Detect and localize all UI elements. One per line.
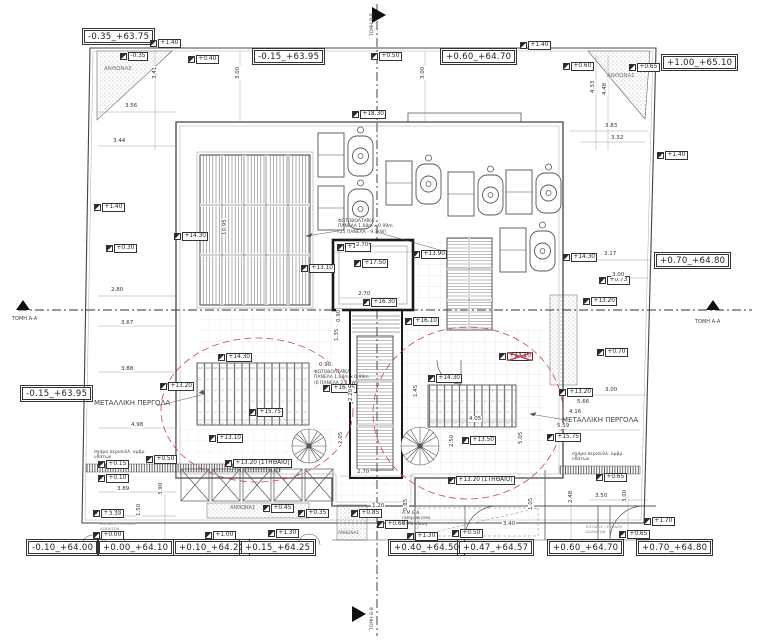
level-marker-icon bbox=[351, 510, 358, 517]
spot-elevation: +0.65 bbox=[596, 473, 627, 482]
dimension-label: 2.80 bbox=[110, 287, 124, 293]
roof-plan-drawing: -0.35_+63.75-0.15_+63.95+0.60_+64.70+1.0… bbox=[0, 0, 768, 640]
annotation-text: ΦΩΤΟΒΟΛΤΑΪΚΑ ΠΑΝΕΛΑ 1.68m x 0.99m (25 ΠΑ… bbox=[338, 219, 393, 235]
spot-elevation: +1.40 bbox=[94, 203, 125, 212]
dimension-label: 3.90 bbox=[158, 482, 164, 496]
spot-elevation: +0.65 bbox=[619, 530, 650, 539]
elevation-level-box: +0.70_+64.80 bbox=[656, 254, 729, 267]
dimension-label: 0.85 bbox=[403, 498, 409, 512]
level-marker-icon bbox=[150, 40, 157, 47]
level-marker-icon bbox=[93, 532, 100, 539]
spot-elevation: +0.30 bbox=[106, 244, 137, 253]
spot-elevation: +0.40 bbox=[188, 55, 219, 64]
level-marker-icon bbox=[93, 510, 100, 517]
spot-elevation: +1.00 bbox=[205, 531, 236, 540]
spot-elevation-value: +13.20 (ΣΤΗΘΑΙΟ) bbox=[456, 476, 515, 485]
spot-elevation: +0.15 bbox=[98, 460, 129, 469]
spot-elevation-value: +0.35 bbox=[306, 509, 329, 518]
level-marker-icon bbox=[120, 53, 127, 60]
level-marker-icon bbox=[413, 251, 420, 258]
dimension-label: 3.56 bbox=[124, 103, 138, 109]
spot-elevation-value: +0.30 bbox=[114, 244, 137, 253]
elevation-level-box: -0.10_+64.00 bbox=[28, 541, 97, 554]
spot-elevation-value: +1.30 bbox=[276, 529, 299, 538]
annotation-text: ΑΝΘΩΝΑΣ bbox=[104, 66, 132, 73]
dimension-label: 3.41 bbox=[152, 66, 158, 80]
spot-elevation-value: +17.50 bbox=[362, 259, 388, 268]
level-marker-icon bbox=[363, 299, 370, 306]
spot-elevation-value: +0.15 bbox=[106, 460, 129, 469]
spot-elevation-value: +0.45 bbox=[271, 504, 294, 513]
spot-elevation-value: +13.20 bbox=[591, 297, 617, 306]
dimension-label: 3.00 bbox=[420, 66, 426, 80]
dimension-label: 3.00 bbox=[235, 66, 241, 80]
dimension-label: 0.90 bbox=[336, 309, 342, 323]
annotation-text: ΜΕΤΑΛΛΙΚΗ ΠΕΡΓΟΛΑ bbox=[562, 416, 638, 424]
spot-elevation-value: +14.30 bbox=[226, 353, 252, 362]
spot-elevation: +1.70 bbox=[644, 517, 675, 526]
spot-elevation-value: +0.65 bbox=[604, 473, 627, 482]
spot-elevation-value: +0.70 bbox=[605, 348, 628, 357]
spot-elevation: +13.20 bbox=[583, 297, 617, 306]
level-marker-icon bbox=[371, 53, 378, 60]
dimension-label: 10.95 bbox=[222, 218, 228, 236]
annotation-text: ΤΟΜΗ Α-Α bbox=[12, 316, 37, 322]
dimension-label: 2.70 bbox=[357, 291, 371, 297]
dimension-label: 5.05 bbox=[518, 431, 524, 445]
dimension-label: 3.89 bbox=[116, 486, 130, 492]
spot-elevation-value: +1.00 bbox=[213, 531, 236, 540]
annotation-text: ΑΝΘΩΝΑΣ bbox=[338, 530, 359, 535]
elevation-level-box: +0.15_+64.25 bbox=[241, 541, 314, 554]
level-marker-icon bbox=[629, 64, 636, 71]
spot-elevation-value: +14.30 bbox=[436, 374, 462, 383]
dimension-label: 4.33 bbox=[590, 80, 596, 94]
dimension-label: 3.40 bbox=[502, 521, 516, 527]
elevation-level-box: -0.15_+63.95 bbox=[254, 50, 323, 63]
spot-elevation-value: +1.40 bbox=[158, 39, 181, 48]
spot-elevation-value: +14.30 bbox=[571, 253, 597, 262]
spot-elevation: +13.20 (ΣΤΗΘΑΙΟ) bbox=[448, 476, 515, 485]
dimension-label: 1.20 bbox=[371, 503, 385, 509]
dimension-label: 4.98 bbox=[130, 422, 144, 428]
dimension-label: 3.17 bbox=[603, 251, 617, 257]
elevation-level-box: +0.47_+64.57 bbox=[459, 541, 532, 554]
annotation-text: σχάρα περισυλλ. ομβρ. υδάτων bbox=[572, 452, 624, 463]
level-marker-icon bbox=[263, 505, 270, 512]
spot-elevation-value: +13.20 bbox=[168, 382, 194, 391]
spot-elevation-value: +1.70 bbox=[652, 517, 675, 526]
dimension-label: 4.16 bbox=[568, 409, 582, 415]
dimension-label: 3.32 bbox=[610, 135, 624, 141]
spot-elevation-value: +1.30 bbox=[415, 532, 438, 541]
spot-elevation: +13.10 bbox=[301, 264, 335, 273]
spot-elevation-value: +1.40 bbox=[528, 41, 551, 50]
level-marker-icon bbox=[174, 233, 181, 240]
spot-elevation: +0.00 bbox=[93, 531, 124, 540]
spot-elevation: +0.45 bbox=[263, 504, 294, 513]
spot-elevation: +14.30 bbox=[428, 374, 462, 383]
spot-elevation-value: +0.50 bbox=[379, 52, 402, 61]
elevation-level-box: -0.35_+63.75 bbox=[84, 30, 153, 43]
level-marker-icon bbox=[377, 521, 384, 528]
spot-elevation: +18.30 bbox=[352, 110, 386, 119]
level-marker-icon bbox=[499, 353, 506, 360]
dimension-label: 1.45 bbox=[413, 384, 419, 398]
spot-elevation-value: -0.35 bbox=[128, 52, 148, 61]
level-marker-icon bbox=[563, 63, 570, 70]
spot-elevation-value: +14.30 bbox=[182, 232, 208, 241]
dimension-label: 5.66 bbox=[576, 399, 590, 405]
dimension-label: 2.70 bbox=[355, 242, 369, 248]
spot-elevation: +14.30 bbox=[563, 253, 597, 262]
level-marker-icon bbox=[352, 111, 359, 118]
elevation-level-box: -0.15_+63.95 bbox=[22, 387, 91, 400]
spot-elevation: +13.90 bbox=[413, 250, 447, 259]
level-marker-icon bbox=[644, 518, 651, 525]
dimension-label: 1.35 bbox=[334, 328, 340, 342]
spot-elevation-value: +1.40 bbox=[102, 203, 125, 212]
level-marker-icon bbox=[209, 435, 216, 442]
level-marker-icon bbox=[547, 434, 554, 441]
spot-elevation: +14.10 bbox=[499, 352, 533, 361]
annotation-text: ΤΟΜΗ Β-Β bbox=[370, 13, 375, 36]
spot-elevation: +16.10 bbox=[405, 317, 439, 326]
level-marker-icon bbox=[146, 456, 153, 463]
dimension-label: 0.90 bbox=[318, 362, 332, 368]
level-marker-icon bbox=[407, 533, 414, 540]
elevation-level-box: +0.60_+64.70 bbox=[442, 50, 515, 63]
level-marker-icon bbox=[218, 354, 225, 361]
level-marker-icon bbox=[160, 383, 167, 390]
level-marker-icon bbox=[563, 254, 570, 261]
spot-elevation-value: +13.20 (ΣΤΗΘΑΙΟ) bbox=[233, 459, 292, 468]
elevation-level-box: +0.60_+64.70 bbox=[549, 541, 622, 554]
level-marker-icon bbox=[597, 349, 604, 356]
level-marker-icon bbox=[520, 42, 527, 49]
spot-elevation: +16.30 bbox=[363, 298, 397, 307]
level-marker-icon bbox=[337, 244, 344, 251]
spot-elevation: +17.50 bbox=[354, 259, 388, 268]
elevation-level-box: +1.00_+65.10 bbox=[663, 56, 736, 69]
spot-elevation: +0.50 bbox=[146, 455, 177, 464]
spot-elevation: +13.20 bbox=[559, 388, 593, 397]
spot-elevation: +1.40 bbox=[150, 39, 181, 48]
dimension-label: 2.50 bbox=[449, 434, 455, 448]
spot-elevation: +13.20 (ΣΤΗΘΑΙΟ) bbox=[225, 459, 292, 468]
spot-elevation: +1.40 bbox=[657, 151, 688, 160]
dimension-label: 3.44 bbox=[112, 138, 126, 144]
spot-elevation-value: +1.40 bbox=[665, 151, 688, 160]
spot-elevation: +0.35 bbox=[298, 509, 329, 518]
dimension-label: 2.70 bbox=[356, 469, 370, 475]
spot-elevation-value: +0.40 bbox=[196, 55, 219, 64]
spot-elevation-value: +13.10 bbox=[217, 434, 243, 443]
spot-elevation: +15.75 bbox=[547, 433, 581, 442]
elevation-level-box: +0.00_+64.10 bbox=[99, 541, 172, 554]
spot-elevation: +13.20 bbox=[160, 382, 194, 391]
spot-elevation-value: +15.75 bbox=[555, 433, 581, 442]
level-marker-icon bbox=[596, 474, 603, 481]
spot-elevation-value: +14.10 bbox=[507, 352, 533, 361]
spot-elevation-value: +0.60 bbox=[571, 62, 594, 71]
level-marker-icon bbox=[94, 204, 101, 211]
spot-elevation-value: +0.65 bbox=[627, 530, 650, 539]
annotation-text: ΤΟΜΗ Α-Α bbox=[695, 319, 720, 325]
dimension-label: 3.00 bbox=[622, 489, 628, 503]
spot-elevation: +14.30 bbox=[174, 232, 208, 241]
level-marker-icon bbox=[249, 409, 256, 416]
dimension-label: 4.05 bbox=[468, 416, 482, 422]
spot-elevation: +0.50 bbox=[452, 529, 483, 538]
level-marker-icon bbox=[225, 460, 232, 467]
spot-elevation: +0.10 bbox=[98, 474, 129, 483]
level-marker-icon bbox=[301, 265, 308, 272]
level-marker-icon bbox=[354, 260, 361, 267]
level-marker-icon bbox=[462, 437, 469, 444]
spot-elevation-value: +0.50 bbox=[154, 455, 177, 464]
dimension-label: 3.39 bbox=[108, 511, 122, 517]
elevation-level-box: +0.40_+64.50 bbox=[390, 541, 463, 554]
spot-elevation: +1.30 bbox=[407, 532, 438, 541]
spot-elevation-value: +18.30 bbox=[360, 110, 386, 119]
spot-elevation: +13.10 bbox=[209, 434, 243, 443]
spot-elevation: +1.30 bbox=[268, 529, 299, 538]
annotation-text: ΑΝΘΩΝΑΣ bbox=[607, 73, 635, 80]
spot-elevation-value: +0.50 bbox=[460, 529, 483, 538]
spot-elevation: +0.70 bbox=[597, 348, 628, 357]
dimension-label: 3.88 bbox=[120, 366, 134, 372]
spot-elevation-value: +15.75 bbox=[257, 408, 283, 417]
annotation-text: σχάρα περισυλλ. ομβρ. υδάτων bbox=[94, 450, 146, 461]
dimension-label: 3.83 bbox=[604, 123, 618, 129]
spot-elevation-value: +16.10 bbox=[413, 317, 439, 326]
dimension-label: 3.67 bbox=[120, 320, 134, 326]
annotation-text: ΑΝΘΩΝΑΣ bbox=[230, 505, 255, 511]
spot-elevation-value: +13.50 bbox=[470, 436, 496, 445]
spot-elevation: +15.75 bbox=[249, 408, 283, 417]
dimension-label: 2.20 bbox=[348, 388, 354, 402]
dimension-label: 4.48 bbox=[602, 82, 608, 96]
dimension-label: 2.48 bbox=[568, 490, 574, 504]
spot-elevation-value: +0.00 bbox=[101, 531, 124, 540]
dimension-label: 3.00 bbox=[604, 387, 618, 393]
annotation-text: ΕΙΣΟΔΟΣ / ΕΞΟΔΟΣ ΔΩΜΑΤΩΝ bbox=[586, 525, 622, 534]
level-marker-icon bbox=[599, 277, 606, 284]
annotation-text: ΕΙΣΟΔΟΣ / ΕΞΟΔΟΣ ΔΩΜΑΤΩΝ bbox=[100, 522, 136, 531]
level-marker-icon bbox=[205, 532, 212, 539]
spot-elevation-value: +0.85 bbox=[359, 509, 382, 518]
spot-elevation: +1.40 bbox=[520, 41, 551, 50]
dimension-label: 2.05 bbox=[338, 431, 344, 445]
spot-elevation: +0.60 bbox=[563, 62, 594, 71]
spot-elevation-value: +0.10 bbox=[106, 474, 129, 483]
labels-layer: -0.35_+63.75-0.15_+63.95+0.60_+64.70+1.0… bbox=[0, 0, 768, 640]
level-marker-icon bbox=[98, 461, 105, 468]
annotation-text: ΜΕΤΑΛΛΙΚΗ ΠΕΡΓΟΛΑ bbox=[94, 399, 170, 407]
level-marker-icon bbox=[188, 56, 195, 63]
spot-elevation: +0.50 bbox=[371, 52, 402, 61]
spot-elevation-value: +16.30 bbox=[371, 298, 397, 307]
level-marker-icon bbox=[452, 530, 459, 537]
dimension-label: 3.50 bbox=[594, 493, 608, 499]
spot-elevation: +0.85 bbox=[351, 509, 382, 518]
level-marker-icon bbox=[583, 298, 590, 305]
spot-elevation: -0.35 bbox=[120, 52, 148, 61]
level-marker-icon bbox=[298, 510, 305, 517]
annotation-text: ΦΩΤΟΒΟΛΤΑΪΚΑ ΠΑΝΕΛΑ 1.68m x 0.99m (6 ΠΑΝ… bbox=[314, 370, 369, 386]
dimension-label: 1.50 bbox=[136, 503, 142, 517]
spot-elevation-value: +13.20 bbox=[567, 388, 593, 397]
level-marker-icon bbox=[428, 375, 435, 382]
dimension-label: 1.05 bbox=[528, 497, 534, 511]
level-marker-icon bbox=[405, 318, 412, 325]
level-marker-icon bbox=[268, 530, 275, 537]
level-marker-icon bbox=[559, 389, 566, 396]
spot-elevation-value: +0.65 bbox=[637, 63, 660, 72]
spot-elevation: +0.65 bbox=[629, 63, 660, 72]
level-marker-icon bbox=[98, 475, 105, 482]
elevation-level-box: +0.70_+64.80 bbox=[638, 541, 711, 554]
spot-elevation: +14.30 bbox=[218, 353, 252, 362]
dimension-label: 3.00 bbox=[611, 272, 625, 278]
spot-elevation-value: +13.10 bbox=[309, 264, 335, 273]
annotation-text: Α.Μ.Ε.Α. ramp access 4.0% κλίση bbox=[402, 511, 430, 527]
spot-elevation-value: +13.90 bbox=[421, 250, 447, 259]
level-marker-icon bbox=[106, 245, 113, 252]
level-marker-icon bbox=[657, 152, 664, 159]
level-marker-icon bbox=[448, 477, 455, 484]
annotation-text: ΤΟΜΗ Β-Β bbox=[370, 607, 375, 630]
elevation-level-box: +0.10_+64.20 bbox=[175, 541, 248, 554]
spot-elevation: +13.50 bbox=[462, 436, 496, 445]
